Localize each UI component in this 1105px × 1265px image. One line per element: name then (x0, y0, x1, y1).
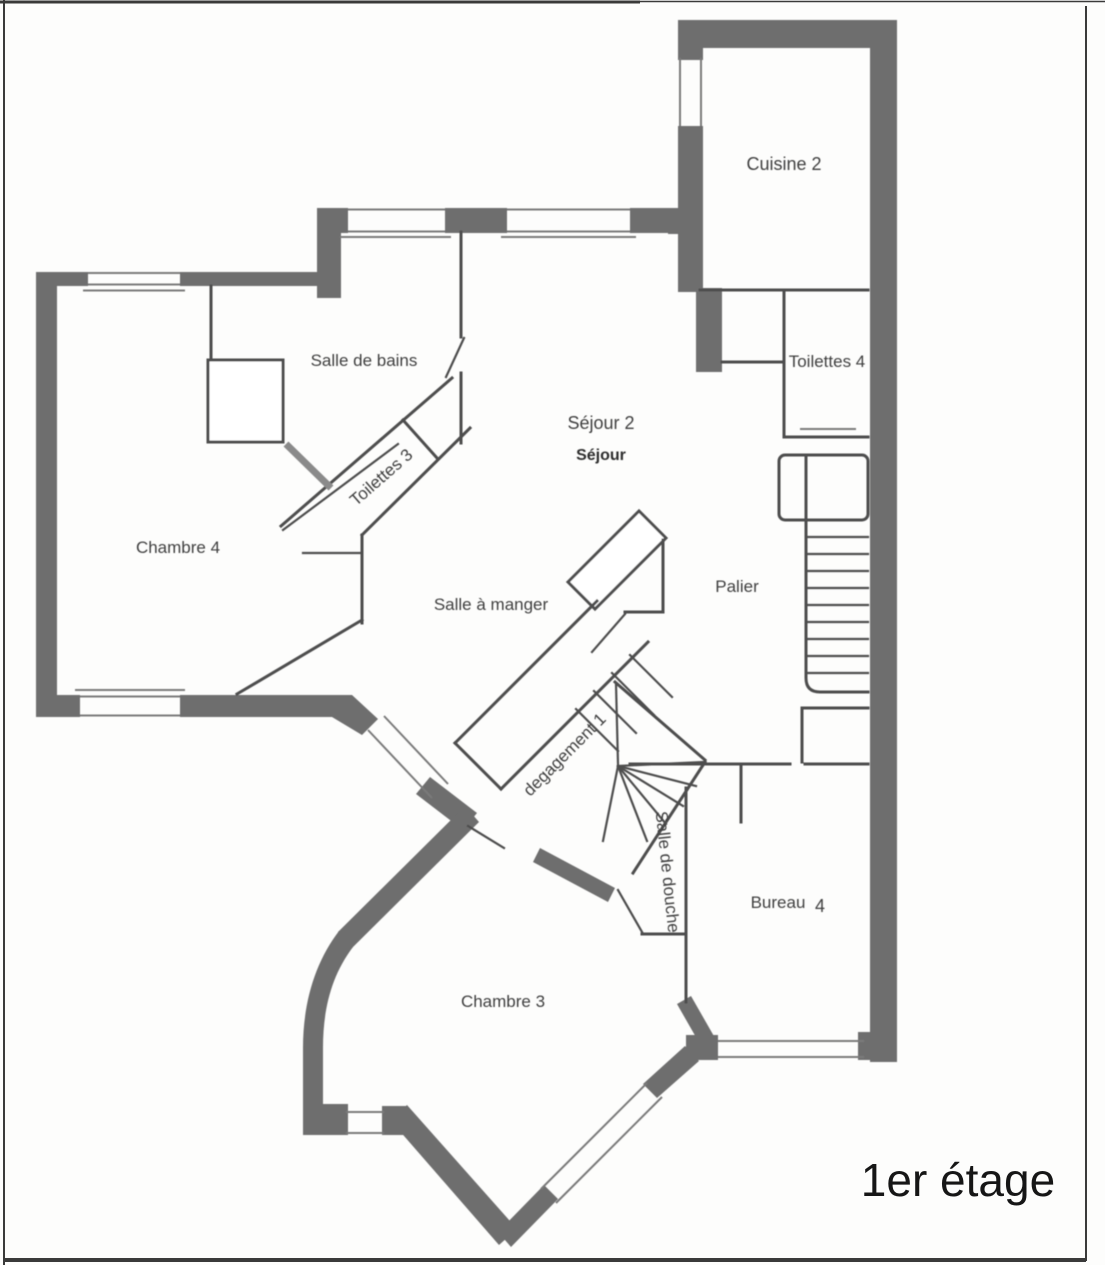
room-label-salle-de-bains: Salle de bains (311, 351, 418, 370)
room-label-bureau: Bureau (751, 893, 806, 912)
room-label-salle-a-manger: Salle à manger (434, 595, 549, 614)
floor-plan-page: Cuisine 2 Toilettes 4 Séjour 2 Séjour Sa… (0, 0, 1105, 1265)
floor-plan: Cuisine 2 Toilettes 4 Séjour 2 Séjour Sa… (0, 0, 1105, 1265)
staircase-main (779, 455, 868, 762)
room-label-sejour: Séjour (576, 447, 626, 464)
floor-title: 1er étage (861, 1154, 1055, 1206)
room-label-salle-de-douche: Salle de douche (652, 810, 684, 933)
page-border (0, 0, 1105, 1265)
room-label-chambre-3: Chambre 3 (461, 992, 545, 1011)
room-label-degagement: degagement 1 (519, 709, 609, 799)
room-label-cuisine: Cuisine 2 (746, 154, 821, 174)
exterior-walls (36, 20, 897, 1247)
room-label-toilettes-4: Toilettes 4 (789, 352, 866, 371)
chimney (568, 511, 666, 609)
room-label-toilettes-3: Toilettes 3 (346, 445, 416, 510)
room-label-sejour-2: Séjour 2 (567, 413, 634, 433)
interior-walls (208, 232, 868, 1002)
room-label-chambre-4: Chambre 4 (136, 538, 220, 557)
room-label-palier: Palier (715, 577, 759, 596)
closet-chambre4 (208, 360, 283, 442)
room-label-bureau-number: 4 (815, 896, 825, 916)
